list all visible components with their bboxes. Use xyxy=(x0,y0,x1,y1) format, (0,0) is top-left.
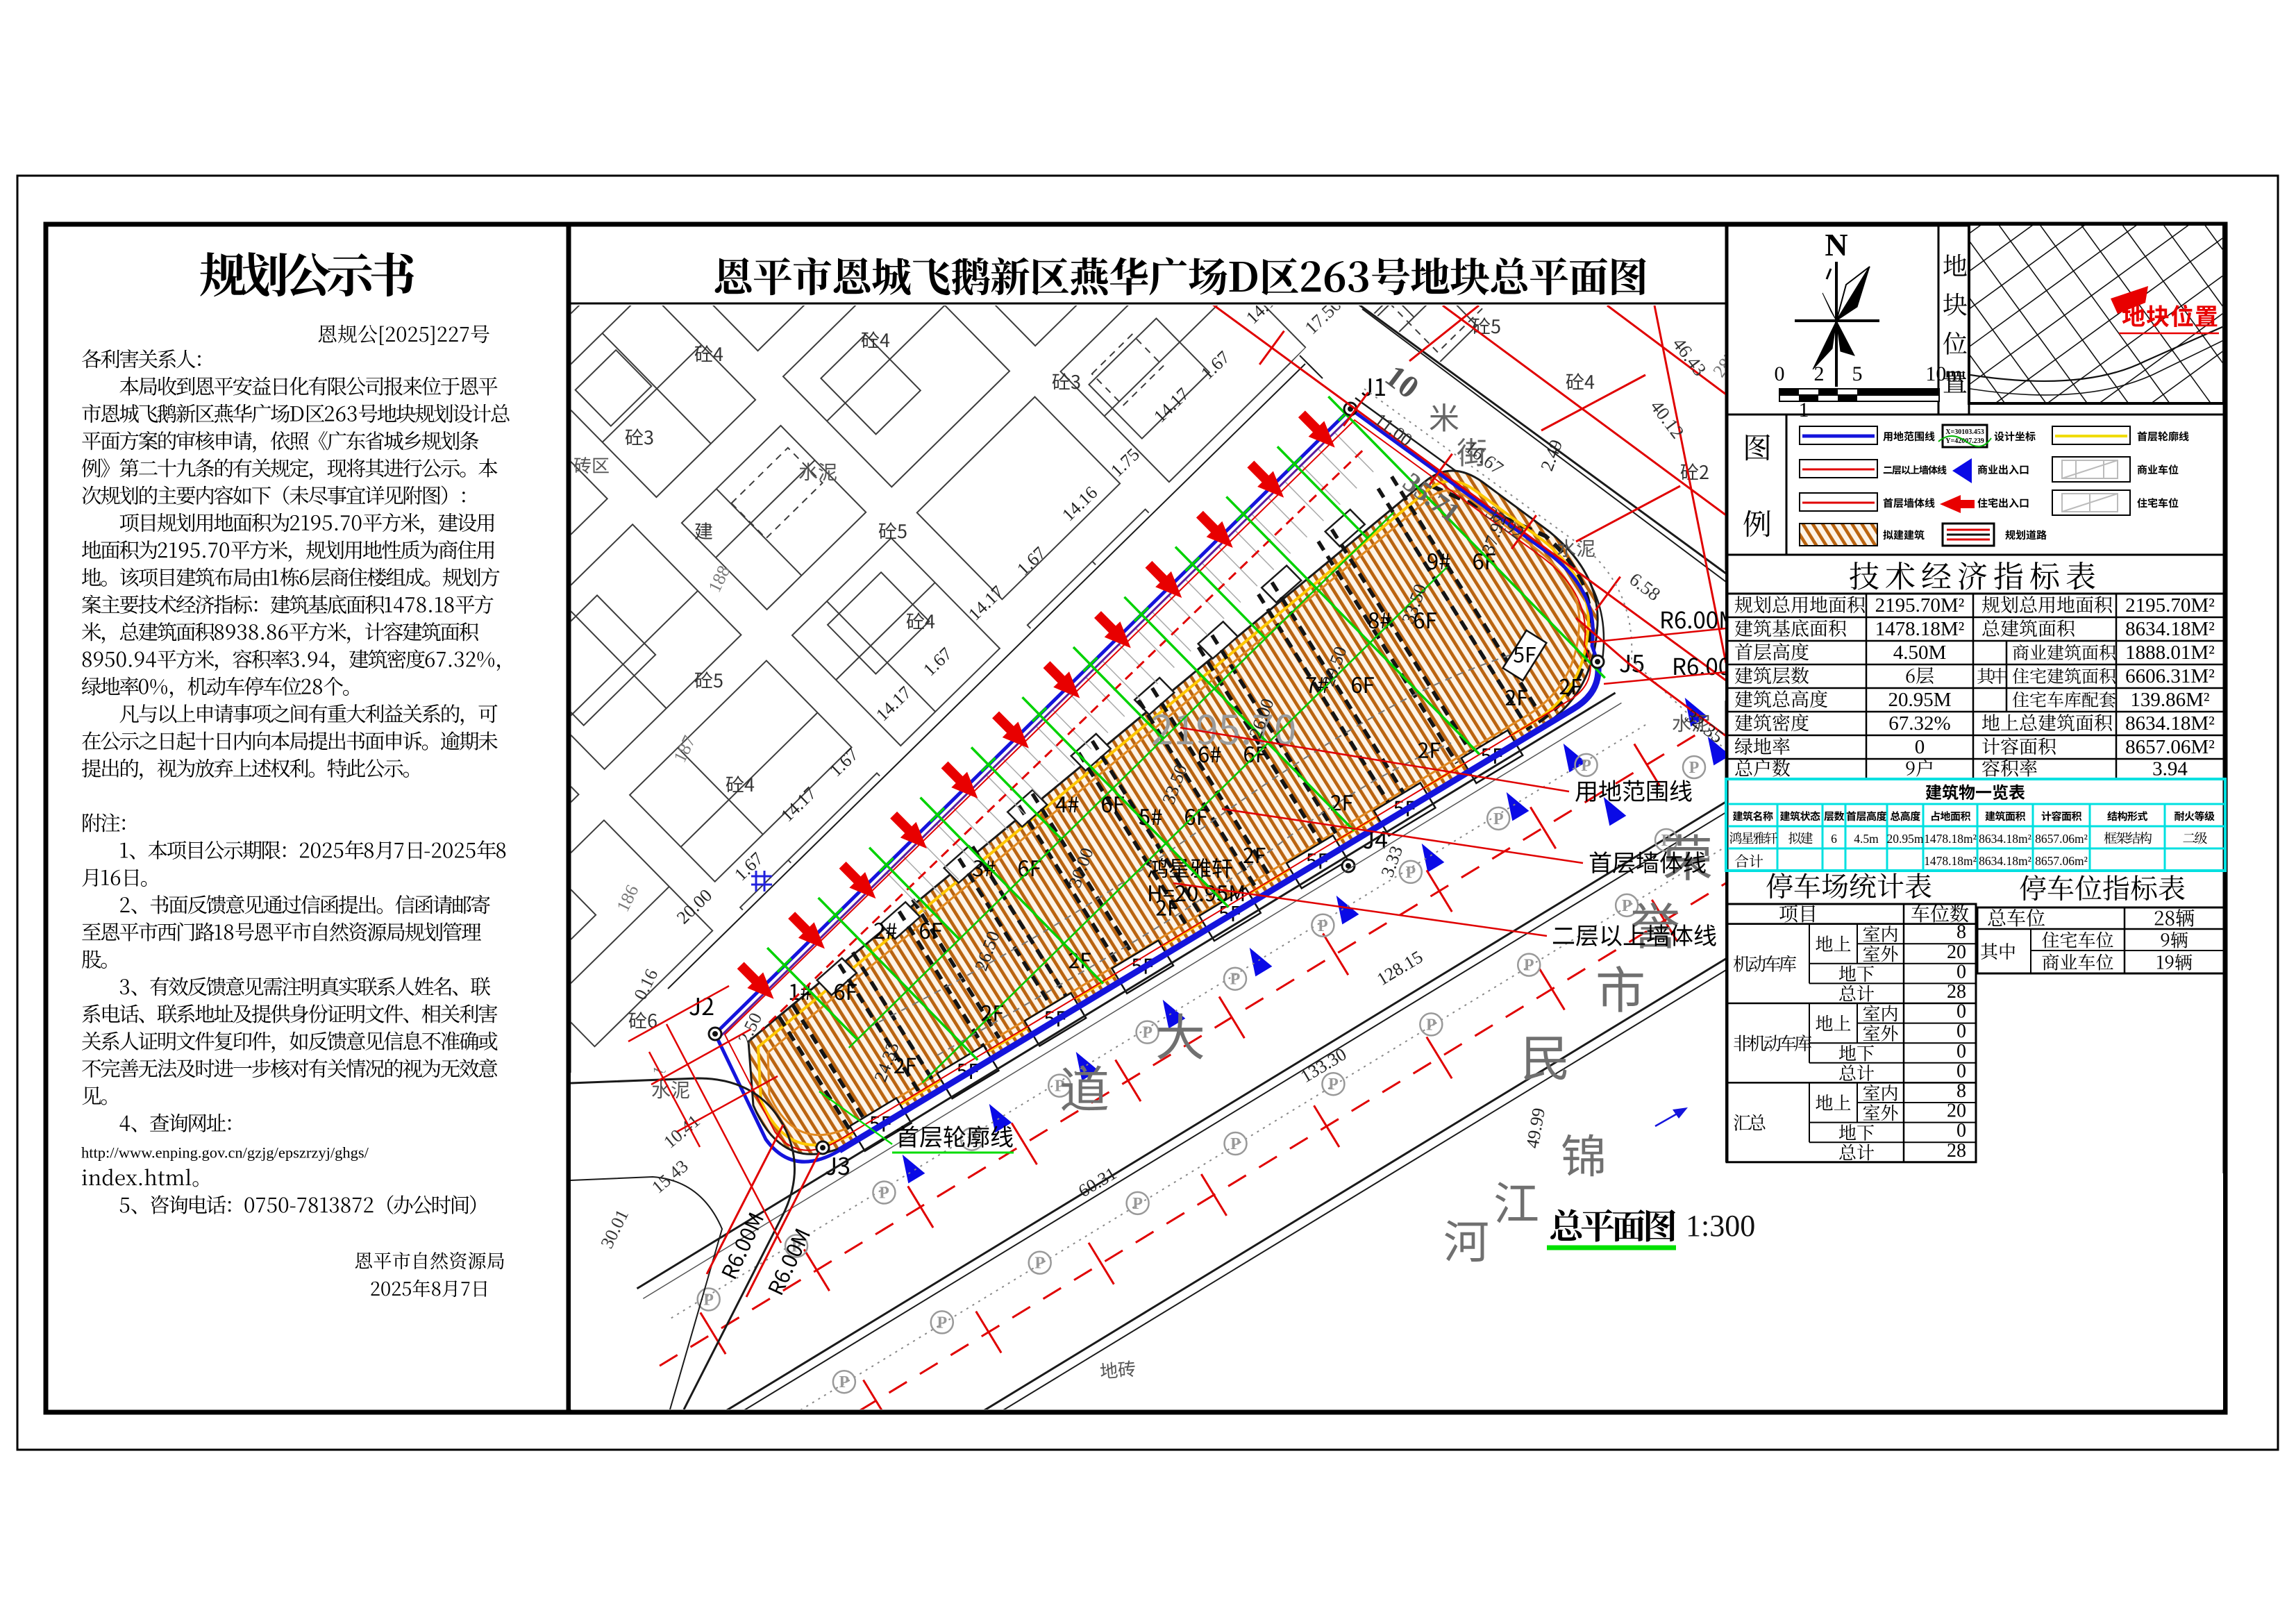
svg-text:P: P xyxy=(879,1184,889,1203)
svg-text:0: 0 xyxy=(1915,736,1925,758)
svg-text:67.32%: 67.32% xyxy=(1888,712,1950,735)
svg-text:0: 0 xyxy=(1956,1120,1966,1141)
svg-text:P: P xyxy=(1230,971,1241,989)
svg-text:8657.06m²: 8657.06m² xyxy=(2035,854,2088,868)
svg-text:5: 5 xyxy=(1852,362,1863,385)
svg-text:P: P xyxy=(1230,1135,1241,1153)
svg-text:8: 8 xyxy=(1956,1080,1966,1102)
svg-text:P: P xyxy=(1524,957,1534,975)
svg-text:8634.18M²: 8634.18M² xyxy=(2125,712,2215,735)
svg-text:8657.06M²: 8657.06M² xyxy=(2125,736,2215,758)
svg-text:20.95M: 20.95M xyxy=(1888,689,1951,711)
svg-text:0: 0 xyxy=(1956,961,1966,982)
svg-text:2195.70M²: 2195.70M² xyxy=(2125,594,2215,617)
svg-text:0: 0 xyxy=(1775,362,1785,385)
svg-text:1478.18m²: 1478.18m² xyxy=(1924,854,1977,868)
svg-text:1: 1 xyxy=(1799,399,1809,421)
svg-text:P: P xyxy=(1581,757,1591,775)
svg-text:P: P xyxy=(1132,1195,1143,1213)
svg-text:P: P xyxy=(1142,1024,1153,1042)
svg-text:P: P xyxy=(937,1314,947,1332)
svg-text:10m: 10m xyxy=(1925,362,1962,385)
svg-text:P: P xyxy=(1689,759,1700,777)
svg-text:20.95m: 20.95m xyxy=(1887,832,1924,846)
svg-text:3.94: 3.94 xyxy=(2152,758,2188,780)
svg-text:N: N xyxy=(1825,227,1847,262)
svg-text:P: P xyxy=(1426,1016,1436,1034)
svg-text:8634.18M²: 8634.18M² xyxy=(2125,618,2215,640)
svg-text:P: P xyxy=(1318,917,1328,935)
svg-text:4.50M: 4.50M xyxy=(1893,642,1947,664)
svg-text:1478.18M²: 1478.18M² xyxy=(1875,618,1965,640)
svg-text:28: 28 xyxy=(1947,1140,1966,1162)
svg-text:P: P xyxy=(1622,897,1632,915)
svg-text:P: P xyxy=(1405,864,1416,882)
svg-text:http://www.enping.gov.cn/gzjg/: http://www.enping.gov.cn/gzjg/epszrzyj/g… xyxy=(81,1144,369,1162)
svg-text:20: 20 xyxy=(1947,941,1966,963)
svg-text:P: P xyxy=(1328,1075,1339,1094)
svg-text:P: P xyxy=(703,1291,714,1309)
svg-text:6606.31M²: 6606.31M² xyxy=(2125,665,2215,687)
svg-text:28: 28 xyxy=(1947,981,1966,1003)
svg-text:P: P xyxy=(1493,810,1504,828)
svg-text:0: 0 xyxy=(1956,1021,1966,1042)
svg-text:0: 0 xyxy=(1956,1001,1966,1023)
svg-text:20: 20 xyxy=(1947,1100,1966,1122)
svg-text:2195.70M²: 2195.70M² xyxy=(1875,594,1965,617)
svg-text:6: 6 xyxy=(1831,832,1837,846)
svg-text:2: 2 xyxy=(1814,362,1825,385)
svg-text:P: P xyxy=(1034,1255,1045,1273)
svg-text:X=30103.453: X=30103.453 xyxy=(1945,428,1984,436)
svg-text:1888.01M²: 1888.01M² xyxy=(2125,642,2215,664)
svg-text:1:300: 1:300 xyxy=(1686,1209,1755,1243)
svg-text:4.5m: 4.5m xyxy=(1854,832,1879,846)
svg-text:0: 0 xyxy=(1956,1041,1966,1062)
svg-text:8657.06m²: 8657.06m² xyxy=(2035,832,2088,846)
svg-text:139.86M²: 139.86M² xyxy=(2130,689,2210,711)
svg-text:1478.18m²: 1478.18m² xyxy=(1924,832,1977,846)
svg-text:8: 8 xyxy=(1956,921,1966,943)
svg-text:8634.18m²: 8634.18m² xyxy=(1979,854,2031,868)
svg-text:P: P xyxy=(839,1373,850,1391)
svg-text:8634.18m²: 8634.18m² xyxy=(1979,832,2031,846)
svg-text:0: 0 xyxy=(1956,1060,1966,1082)
